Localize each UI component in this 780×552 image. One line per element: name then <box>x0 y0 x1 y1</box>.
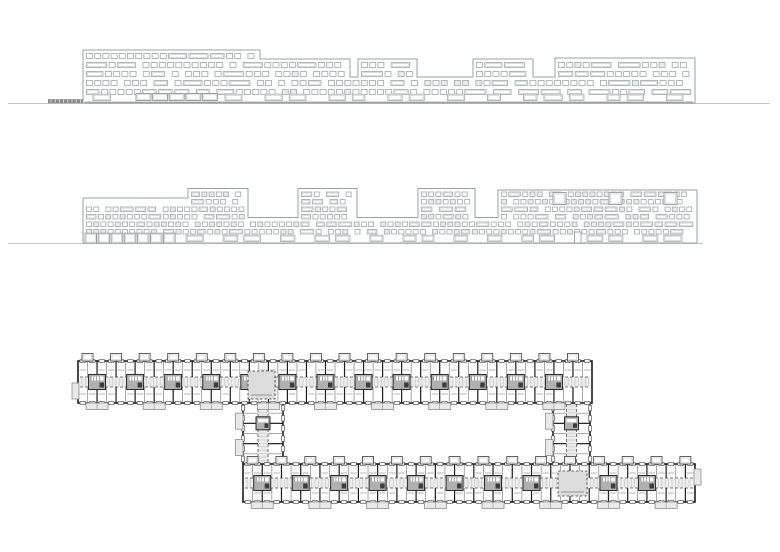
wing-balcony <box>546 413 554 429</box>
window-small <box>322 72 328 77</box>
facade-opening <box>299 360 305 363</box>
window-small <box>485 72 491 77</box>
core-stair-flight <box>129 377 142 381</box>
window-small <box>680 63 686 68</box>
window-small <box>170 215 175 220</box>
window-small <box>672 207 677 212</box>
window-small <box>94 207 99 212</box>
window-small <box>463 215 468 220</box>
window-wide <box>120 207 133 212</box>
window-small <box>354 222 359 227</box>
facade-opening <box>289 402 295 405</box>
window-small <box>330 207 335 212</box>
window-small <box>624 72 630 77</box>
window-small <box>502 215 507 220</box>
core-stair-flight <box>205 377 218 381</box>
window-small <box>535 200 540 205</box>
window-small <box>87 81 93 86</box>
window-small <box>95 81 101 86</box>
window-small <box>574 207 579 212</box>
facade-opening <box>620 501 626 504</box>
window-small <box>230 63 236 68</box>
core-shaft <box>176 383 181 388</box>
facade-opening <box>389 501 395 504</box>
window-small <box>406 72 412 77</box>
window-small <box>398 72 404 77</box>
core-shaft <box>518 383 523 388</box>
window-small <box>377 90 383 95</box>
facade-opening <box>80 402 86 405</box>
window-small <box>113 215 118 220</box>
window-small <box>584 222 589 227</box>
window-small <box>202 72 208 77</box>
window-small <box>159 63 165 68</box>
core-stair-flight <box>509 377 522 381</box>
window-small <box>144 54 150 59</box>
window-small <box>583 192 588 197</box>
window-small <box>209 192 214 197</box>
window-small <box>608 230 613 235</box>
window-small <box>276 72 282 77</box>
window-small <box>273 63 279 68</box>
facade-opening <box>137 402 143 405</box>
window-wide <box>537 230 550 235</box>
window-small <box>281 230 286 235</box>
facade-opening <box>537 402 543 405</box>
window-small <box>120 215 125 220</box>
window-small <box>516 230 521 235</box>
window-small <box>163 207 168 212</box>
window-wide <box>439 207 452 212</box>
facade-opening <box>242 402 248 405</box>
facade-opening <box>322 463 328 466</box>
window-small <box>593 200 598 205</box>
window-small <box>133 81 139 86</box>
window-small <box>385 72 391 77</box>
window-small <box>205 81 211 86</box>
window-small <box>591 222 596 227</box>
facade-opening <box>337 402 343 405</box>
facade-opening <box>341 501 347 504</box>
window-small <box>217 63 223 68</box>
window-small <box>679 207 684 212</box>
window-small <box>587 81 593 86</box>
window-small <box>245 230 250 235</box>
window-small <box>87 54 93 59</box>
window-small <box>518 222 523 227</box>
window-small <box>412 81 418 86</box>
facade-opening <box>380 463 386 466</box>
window-small <box>455 192 460 197</box>
window-small <box>300 81 306 86</box>
window-small <box>433 81 439 86</box>
core-stair-flight <box>547 377 560 381</box>
window-small <box>142 215 147 220</box>
window-small <box>119 54 125 59</box>
window-small <box>458 200 463 205</box>
facade-opening <box>466 463 472 466</box>
facade-opening <box>423 402 429 405</box>
window-small <box>643 63 649 68</box>
window-wide <box>679 222 692 227</box>
core-stair-flight <box>319 377 332 381</box>
window-small <box>571 81 577 86</box>
window-wide <box>502 207 513 212</box>
window-small <box>441 222 446 227</box>
facade-opening <box>293 501 299 504</box>
facade-opening <box>572 501 578 504</box>
window-small <box>254 72 260 77</box>
window-small <box>233 200 238 205</box>
facade-opening <box>668 463 674 466</box>
window-small <box>130 222 135 227</box>
window-small <box>231 222 236 227</box>
window-small <box>462 222 467 227</box>
core-shaft <box>328 383 333 388</box>
window-wide <box>326 192 338 197</box>
window-small <box>300 72 306 77</box>
window-small <box>113 207 118 212</box>
window-small <box>151 63 157 68</box>
window-small <box>185 207 190 212</box>
core-stair-flight <box>602 478 615 482</box>
window-small <box>252 230 257 235</box>
window-small <box>251 222 256 227</box>
window-small <box>168 63 174 68</box>
window-small <box>487 230 492 235</box>
window-small <box>328 230 333 235</box>
window-small <box>355 230 360 235</box>
facade-opening <box>251 402 257 405</box>
window-small <box>279 81 285 86</box>
window-small <box>684 215 689 220</box>
window-small <box>178 215 183 220</box>
floor-plan-drawing <box>72 354 701 509</box>
window-small <box>514 200 519 205</box>
window-small <box>160 54 166 59</box>
facade-opening <box>480 402 486 405</box>
window-small <box>413 230 418 235</box>
facade-opening <box>461 402 467 405</box>
core-shaft <box>342 484 347 489</box>
window-small <box>384 230 389 235</box>
core-shaft <box>404 383 409 388</box>
window-small <box>634 200 639 205</box>
facade-opening <box>282 416 285 422</box>
window-small <box>130 72 136 77</box>
window-small <box>501 230 506 235</box>
facade-opening <box>678 501 684 504</box>
window-wide <box>509 192 521 197</box>
window-wide <box>665 222 677 227</box>
facade-opening <box>575 402 581 405</box>
window-small <box>190 230 195 235</box>
window-small <box>106 215 111 220</box>
window-small <box>447 230 452 235</box>
facade-opening <box>565 402 571 405</box>
facade-opening <box>553 463 559 466</box>
facade-opening <box>128 360 134 363</box>
window-small <box>361 81 367 86</box>
facade-opening <box>508 402 514 405</box>
facade-opening <box>166 402 172 405</box>
core-stair-flight <box>357 377 370 381</box>
window-small <box>554 81 560 86</box>
facade-opening <box>582 463 588 466</box>
facade-opening <box>527 402 533 405</box>
window-small <box>649 230 654 235</box>
facade-opening <box>556 360 562 363</box>
window-small <box>292 81 298 86</box>
window-small <box>259 230 264 235</box>
window-small <box>114 72 120 77</box>
window-small <box>369 222 374 227</box>
core-shaft <box>556 383 561 388</box>
window-small <box>586 200 591 205</box>
middle-elevation-drawing <box>8 189 703 244</box>
facade-opening <box>280 402 286 405</box>
window-wide <box>535 215 548 220</box>
wing-balcony <box>236 440 244 456</box>
window-small <box>672 63 678 68</box>
window-small <box>342 215 347 220</box>
window-small <box>123 222 128 227</box>
window-small <box>126 90 132 95</box>
facade-opening <box>457 501 463 504</box>
window-small <box>502 192 507 197</box>
window-small <box>316 230 321 235</box>
window-small <box>124 81 130 86</box>
window-small <box>530 192 535 197</box>
window-small <box>362 63 368 68</box>
window-small <box>465 200 470 205</box>
facade-opening <box>299 402 305 405</box>
window-small <box>687 207 692 212</box>
window-small <box>480 230 485 235</box>
window-small <box>545 207 550 212</box>
window-small <box>192 215 197 220</box>
facade-opening <box>505 501 511 504</box>
window-small <box>224 222 229 227</box>
facade-opening <box>356 402 362 405</box>
core-shaft <box>290 383 295 388</box>
window-small <box>456 215 461 220</box>
window-wide <box>671 230 683 235</box>
corridor-band <box>245 478 693 488</box>
window-wide <box>605 215 618 220</box>
window-small <box>606 222 611 227</box>
core-shaft <box>419 484 424 489</box>
window-small <box>683 72 689 77</box>
window-small <box>477 72 483 77</box>
window-small <box>314 72 320 77</box>
window-small <box>209 63 215 68</box>
window-small <box>615 230 620 235</box>
window-small <box>660 81 666 86</box>
window-small <box>292 72 298 77</box>
facade-opening <box>630 501 636 504</box>
window-small <box>663 230 668 235</box>
window-small <box>681 192 686 197</box>
window-small <box>670 215 675 220</box>
window-small <box>633 215 638 220</box>
window-small <box>143 63 149 68</box>
window-small <box>579 81 585 86</box>
window-small <box>176 222 181 227</box>
window-small <box>455 222 460 227</box>
window-small <box>436 192 441 197</box>
window-small <box>530 230 535 235</box>
facade-opening <box>356 360 362 363</box>
facade-opening <box>274 501 280 504</box>
facade-opening <box>649 501 655 504</box>
upper-elevation-drawing <box>8 50 770 104</box>
window-small <box>216 192 221 197</box>
window-small <box>523 192 528 197</box>
facade-opening <box>639 501 645 504</box>
window-small <box>224 192 229 197</box>
window-small <box>491 222 496 227</box>
window-small <box>176 63 182 68</box>
facade-opening <box>347 402 353 405</box>
facade-opening <box>589 436 592 442</box>
window-small <box>152 54 158 59</box>
window-small <box>571 200 576 205</box>
facade-opening <box>582 501 588 504</box>
facade-opening <box>293 463 299 466</box>
core-stair-flight <box>294 478 307 482</box>
window-small <box>392 230 397 235</box>
facade-opening <box>242 456 245 462</box>
window-small <box>281 63 287 68</box>
window-small <box>340 200 345 205</box>
window-small <box>225 207 230 212</box>
window-small <box>626 215 631 220</box>
window-small <box>111 81 117 86</box>
window-small <box>105 72 111 77</box>
facade-opening <box>185 402 191 405</box>
window-small <box>213 81 219 86</box>
facade-opening <box>524 463 530 466</box>
facade-opening <box>282 436 285 442</box>
window-small <box>109 63 115 68</box>
facade-opening <box>99 360 105 363</box>
facade-opening <box>589 456 592 462</box>
core-stair-flight <box>371 478 384 482</box>
core-shaft <box>380 484 385 489</box>
window-small <box>443 200 448 205</box>
facade-opening <box>499 360 505 363</box>
window-small <box>424 90 430 95</box>
core-shaft <box>573 423 577 428</box>
window-small <box>670 72 676 77</box>
facade-opening <box>447 501 453 504</box>
facade-opening <box>213 360 219 363</box>
window-small <box>588 215 593 220</box>
facade-opening <box>589 416 592 422</box>
facade-opening <box>418 501 424 504</box>
window-small <box>420 230 425 235</box>
window-small <box>433 222 438 227</box>
facade-opening <box>404 402 410 405</box>
window-wide <box>644 192 656 197</box>
window-small <box>378 81 384 86</box>
window-small <box>248 54 254 59</box>
window-small <box>579 200 584 205</box>
window-small <box>213 200 218 205</box>
core-stair-flight <box>567 419 577 423</box>
window-small <box>508 230 513 235</box>
window-wide <box>605 207 617 212</box>
window-small <box>395 222 400 227</box>
window-small <box>103 81 109 86</box>
facade-opening <box>264 463 270 466</box>
window-small <box>284 72 290 77</box>
window-small <box>538 81 544 86</box>
window-small <box>127 215 132 220</box>
window-small <box>235 54 241 59</box>
facade-opening <box>332 501 338 504</box>
window-small <box>597 192 602 197</box>
window-small <box>521 215 526 220</box>
window-small <box>436 200 441 205</box>
window-small <box>141 81 147 86</box>
window-small <box>135 215 140 220</box>
core-shaft <box>442 383 447 388</box>
core-shaft <box>496 484 501 489</box>
facade-opening <box>413 360 419 363</box>
window-wide <box>613 222 624 227</box>
core-shaft <box>366 383 371 388</box>
window-small <box>338 72 344 77</box>
window-small <box>661 72 667 77</box>
window-small <box>422 200 427 205</box>
facade-opening <box>303 501 309 504</box>
window-small <box>176 230 181 235</box>
window-small <box>388 222 393 227</box>
window-small <box>567 207 572 212</box>
window-small <box>335 63 341 68</box>
facade-opening <box>245 501 251 504</box>
window-small <box>227 54 233 59</box>
window-small <box>450 200 455 205</box>
window-small <box>498 222 503 227</box>
entrance-door <box>575 232 582 243</box>
end-cap-balcony <box>694 469 701 485</box>
window-small <box>369 90 375 95</box>
window-small <box>246 72 252 77</box>
window-small <box>600 81 606 86</box>
window-small <box>525 222 530 227</box>
facade-opening <box>639 463 645 466</box>
facade-opening <box>394 402 400 405</box>
facade-opening <box>351 463 357 466</box>
window-small <box>195 222 200 227</box>
window-small <box>441 81 447 86</box>
window-small <box>432 90 438 95</box>
core-stair-flight <box>258 419 268 423</box>
window-small <box>469 222 474 227</box>
facade-opening <box>242 360 248 363</box>
window-small <box>320 90 326 95</box>
facade-opening <box>534 501 540 504</box>
window-small <box>327 215 332 220</box>
window-small <box>399 230 404 235</box>
window-small <box>314 192 319 197</box>
core-shaft <box>100 383 105 388</box>
window-small <box>184 63 190 68</box>
facade-opening <box>242 405 245 411</box>
